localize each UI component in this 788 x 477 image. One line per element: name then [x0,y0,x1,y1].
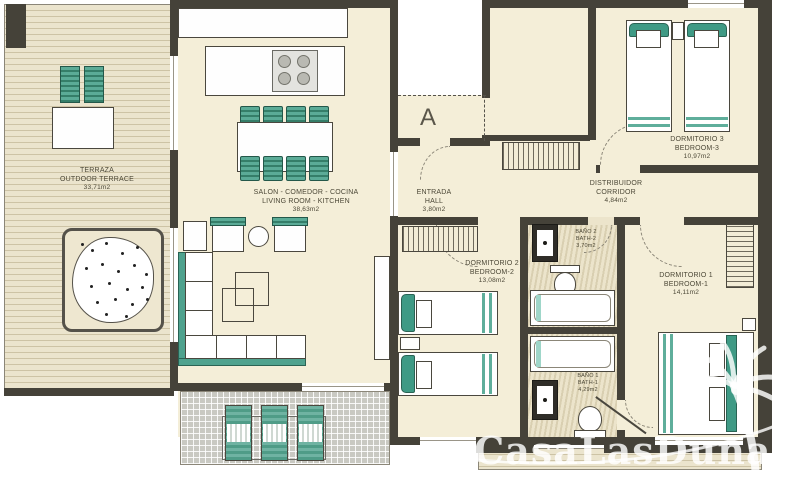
window [420,437,476,445]
sofa-seam [186,310,212,311]
palm-tree-icon [684,334,788,477]
side-table [183,221,207,251]
sofa [185,252,213,338]
room-name-es: DISTRIBUIDOR [590,179,643,188]
sliding-door [302,383,384,391]
sink-drain [543,398,547,402]
dining-chair [240,156,260,181]
stove-icon [272,50,318,92]
pillow [694,30,719,48]
sink [532,224,558,262]
floor-plan: TERRAZA OUTDOOR TERRACE 33,71m2 SALON - … [0,0,788,477]
bedroom3-door-gap [600,165,640,173]
burner-icon [278,72,291,85]
unit-label: A [420,104,436,132]
bathtub-inner [534,340,611,368]
outdoor-table [52,107,114,149]
wall [170,0,398,8]
sofa-seam [216,336,217,358]
room-name-en: BEDROOM-3 [670,144,724,153]
bedroom2-door-gap [478,217,520,225]
room-name-es: SALON - COMEDOR - COCINA [254,188,359,197]
bed-single [684,20,730,132]
wall [4,388,174,396]
room-name-en: LIVING ROOM - KITCHEN [254,197,359,206]
room-label-bedroom3: DORMITORIO 3 BEDROOM-3 10,97m2 [670,135,724,162]
armchair [212,224,244,252]
coffee-table [222,288,254,322]
kitchen-counter [178,8,348,38]
burner-icon [297,72,310,85]
room-label-terrace: TERRAZA OUTDOOR TERRACE 33,71m2 [60,166,134,193]
wall [390,8,398,445]
hot-tub [62,228,164,332]
bath2-door-gap [588,217,614,225]
room-name-en: BATH-2 [575,236,596,243]
wall [398,217,772,225]
room-name-es: BAÑO 1 [577,373,598,380]
bathtub-waterline [536,295,541,321]
wardrobe [402,226,478,252]
sofa-seam [186,281,212,282]
sliding-door [170,56,178,150]
wall [528,327,617,334]
bed-foot-stripes [480,354,495,394]
room-area: 3,70m2 [575,243,596,250]
bathtub [530,290,615,326]
room-label-bath2: BAÑO 2 BATH-2 3,70m2 [575,229,596,250]
sofa-seam [276,336,277,358]
pillow [636,30,661,48]
wall [588,8,596,140]
bathtub-inner [534,294,611,322]
wall [6,4,26,48]
round-side-table [248,226,269,247]
burner-icon [297,55,310,68]
hot-tub-jets [81,243,84,246]
nightstand [672,22,684,40]
room-name-en: HALL [417,197,452,206]
room-area: 38,63m2 [254,206,359,215]
wall [482,135,590,141]
room-name-es: TERRAZA [60,166,134,175]
bed-foot-stripes [628,115,670,128]
headboard [401,355,415,393]
room-name-en: CORRIDOR [590,188,643,197]
tv-cabinet [374,256,390,360]
room-label-bath1: BAÑO 1 BATH-1 4,29m2 [577,373,598,394]
dining-chair [286,156,306,181]
room-name-en: BATH-1 [577,380,598,387]
room-name-es: ENTRADA [417,188,452,197]
opening [390,152,398,216]
room-area: 13,08m2 [465,277,519,286]
bed-foot-stripes [686,115,728,128]
bedroom1-door-gap [640,217,684,225]
bathtub [530,336,615,372]
bed-single [626,20,672,132]
room-label-living: SALON - COMEDOR - COCINA LIVING ROOM - K… [254,188,359,215]
pillow [416,300,432,328]
room-label-bedroom1: DORMITORIO 1 BEDROOM-1 14,11m2 [659,271,713,298]
pillow [416,361,432,389]
wall [398,138,420,146]
porch-dashed-line [484,95,485,141]
window [688,0,744,8]
nightstand [742,318,756,331]
room-area: 10,97m2 [670,153,724,162]
dining-chair [263,156,283,181]
terrace-deck [4,4,172,392]
armchair [274,224,306,252]
room-area: 4,84m2 [590,197,643,206]
armchair-back [272,217,308,226]
room-name-es: BAÑO 2 [575,229,596,236]
sliding-door [170,228,178,342]
room-name-es: DORMITORIO 1 [659,271,713,280]
bed-single [398,291,498,335]
sun-lounger [225,405,252,461]
terrace-side-table [60,66,80,103]
armchair-back [210,217,246,226]
room-name-en: BEDROOM-2 [465,268,519,277]
room-name-es: DORMITORIO 2 [465,259,519,268]
sun-lounger [261,405,288,461]
lounger-slats [299,424,322,441]
sun-lounger [297,405,324,461]
lounger-slats [263,424,286,441]
wall [482,8,490,98]
room-label-hall: ENTRADA HALL 3,80m2 [417,188,452,215]
lounger-slats [227,424,250,441]
entry-porch-outside [392,8,484,95]
sofa-back [178,358,306,366]
room-area: 33,71m2 [60,184,134,193]
room-area: 4,29m2 [577,387,598,394]
sofa-seam [246,336,247,358]
bathtub-waterline [536,341,541,367]
wall [520,217,528,445]
sink-drain [543,241,547,245]
dining-chair [309,156,329,181]
room-label-corridor: DISTRIBUIDOR CORRIDOR 4,84m2 [590,179,643,206]
wardrobe [502,142,580,170]
hot-tub-water [72,237,154,323]
sofa [185,335,306,359]
bed-single [398,352,498,396]
room-area: 3,80m2 [417,206,452,215]
nightstand [400,337,420,350]
room-area: 14,11m2 [659,289,713,298]
room-name-en: OUTDOOR TERRACE [60,175,134,184]
room-label-bedroom2: DORMITORIO 2 BEDROOM-2 13,08m2 [465,259,519,286]
headboard [401,294,415,332]
burner-icon [278,55,291,68]
porch-dashed-line [398,95,486,96]
terrace-side-table [84,66,104,103]
room-name-es: DORMITORIO 3 [670,135,724,144]
wardrobe [726,224,754,288]
bed-foot-stripes [480,293,495,333]
room-name-en: BEDROOM-1 [659,280,713,289]
